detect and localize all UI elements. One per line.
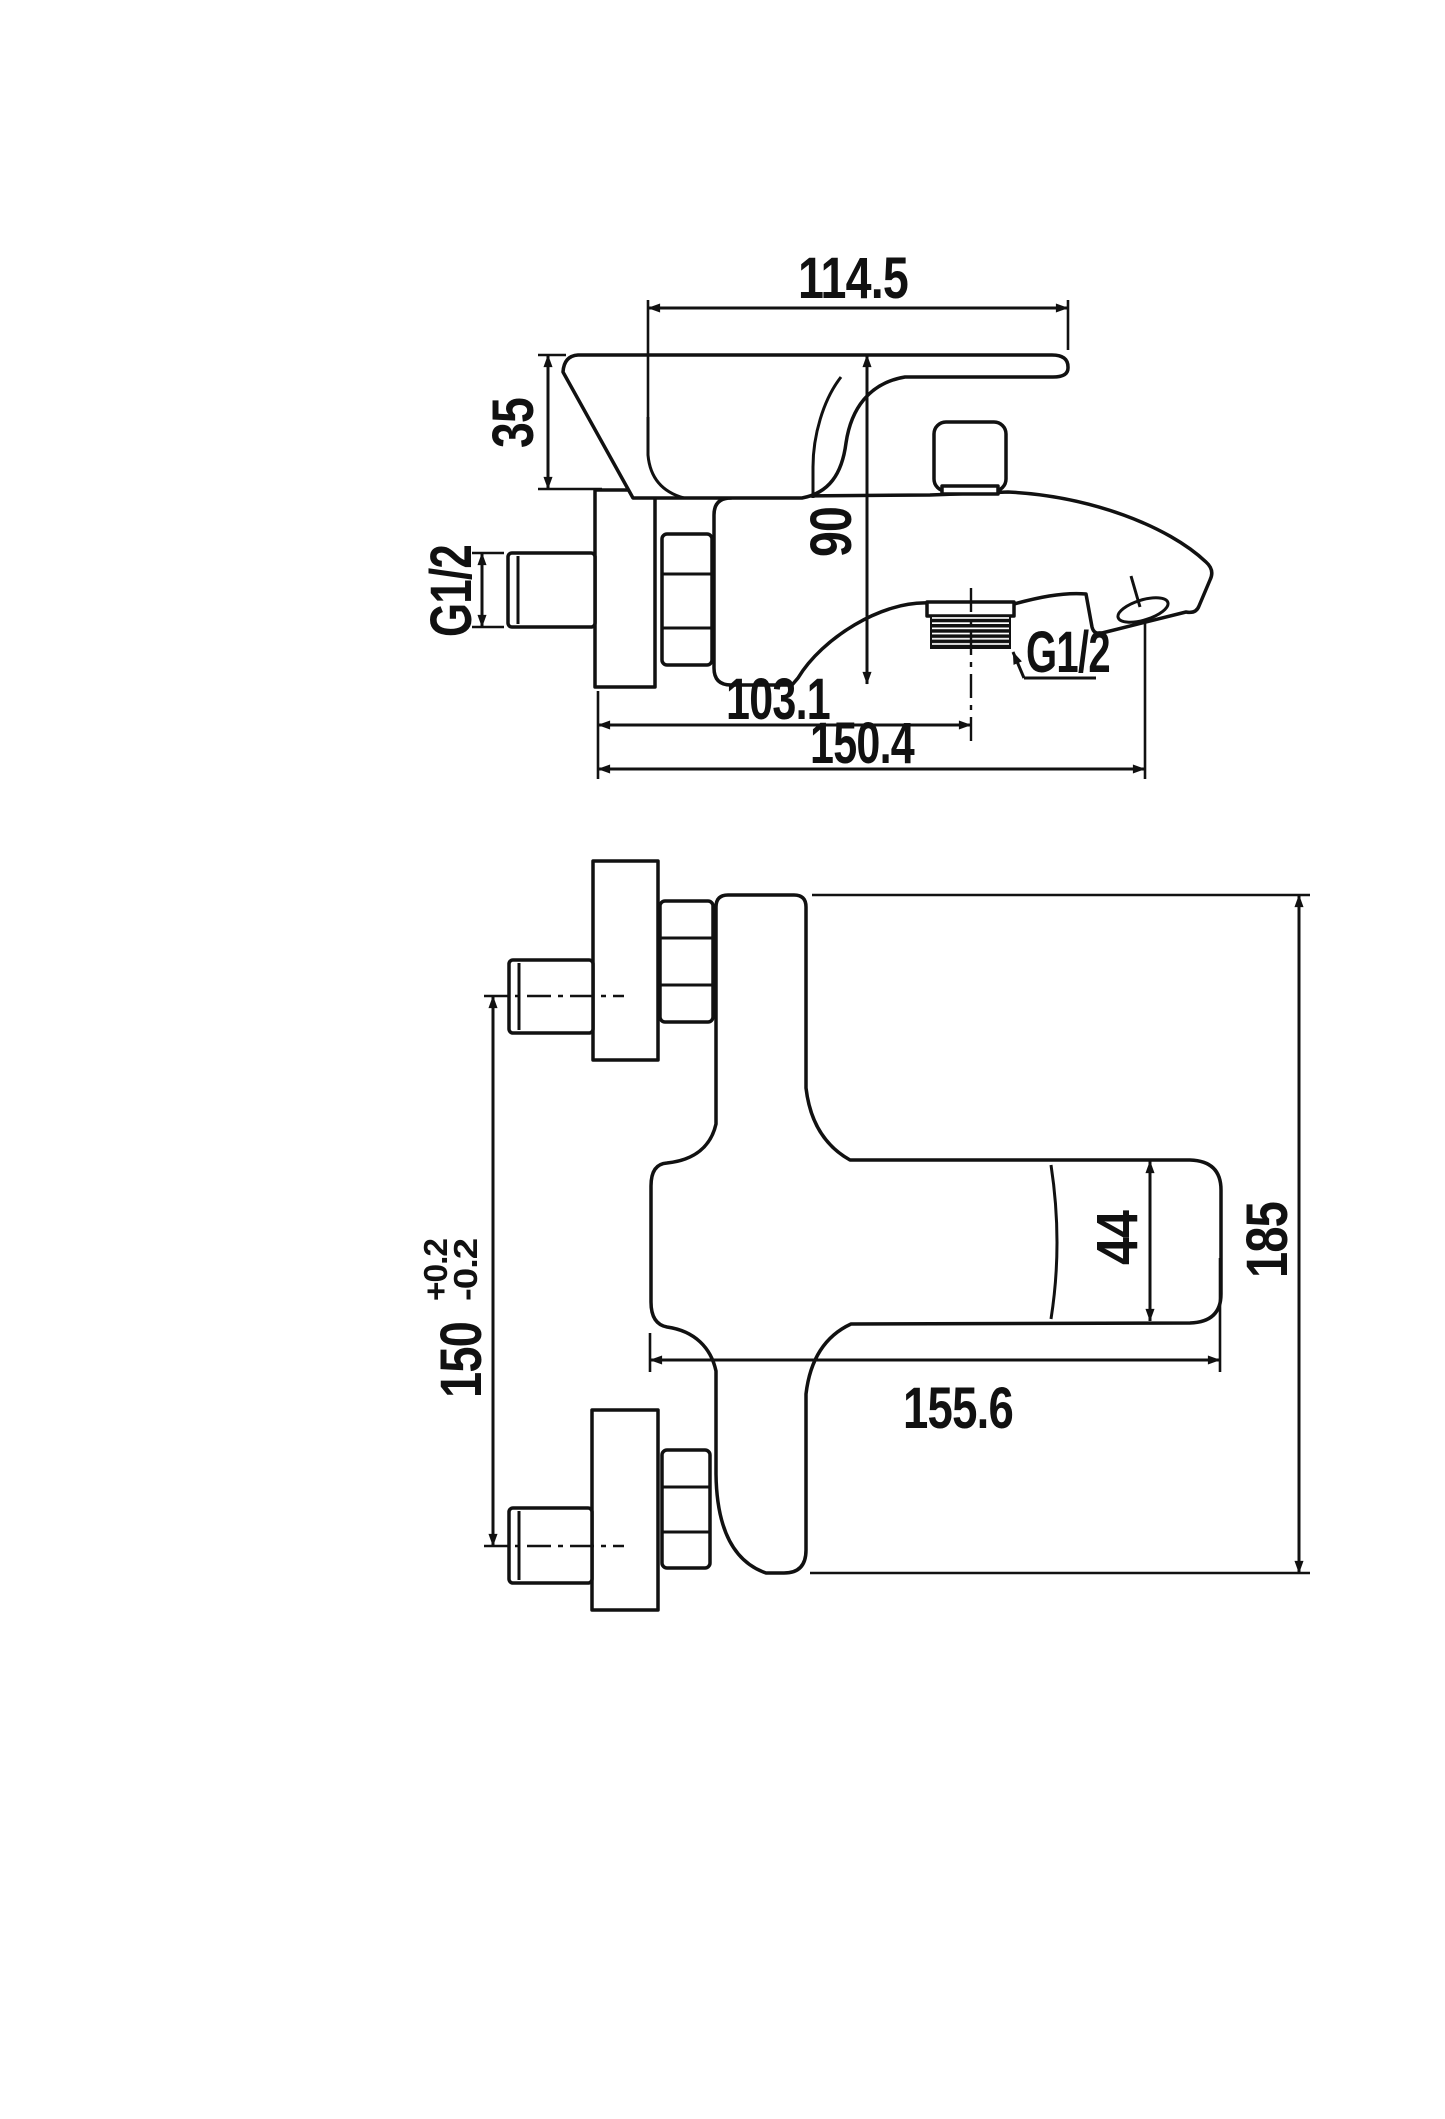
dim-label-35: 35 bbox=[481, 398, 546, 448]
wall-flange-lower bbox=[592, 1410, 658, 1610]
faucet-technical-drawing: 114.5 35 90 G1/2 103.1 150.4 G1/2 bbox=[0, 0, 1445, 2119]
dim-label-g12-outlet: G1/2 bbox=[1026, 620, 1110, 685]
dim-label-44: 44 bbox=[1085, 1210, 1150, 1265]
union-nut bbox=[662, 534, 712, 665]
dim-label-150-4: 150.4 bbox=[810, 711, 915, 776]
wall-flange-upper bbox=[593, 861, 658, 1060]
dim-label-114-5: 114.5 bbox=[798, 246, 908, 311]
diverter-knob-base bbox=[942, 486, 998, 494]
body-spout-outline bbox=[655, 492, 1212, 685]
front-view: 150 +0.2 -0.2 44 185 155.6 bbox=[417, 861, 1310, 1610]
dim-label-150: 150 bbox=[429, 1322, 494, 1398]
union-nut-lower bbox=[662, 1450, 710, 1568]
dim-label-90: 90 bbox=[799, 507, 864, 557]
leader-line bbox=[1013, 652, 1024, 678]
diverter-knob bbox=[934, 422, 1006, 491]
inlet-pipe bbox=[508, 553, 595, 627]
dim-label-185: 185 bbox=[1235, 1202, 1300, 1278]
dim-label-155-6: 155.6 bbox=[903, 1376, 1013, 1441]
wall-flange bbox=[595, 490, 655, 687]
dim-label-150-tol-minus: -0.2 bbox=[447, 1238, 484, 1301]
side-view: 114.5 35 90 G1/2 103.1 150.4 G1/2 bbox=[419, 246, 1212, 779]
dim-label-g12-inlet: G1/2 bbox=[419, 545, 484, 637]
union-nut-upper bbox=[660, 901, 713, 1022]
drawing-sheet: 114.5 35 90 G1/2 103.1 150.4 G1/2 bbox=[0, 0, 1445, 2119]
